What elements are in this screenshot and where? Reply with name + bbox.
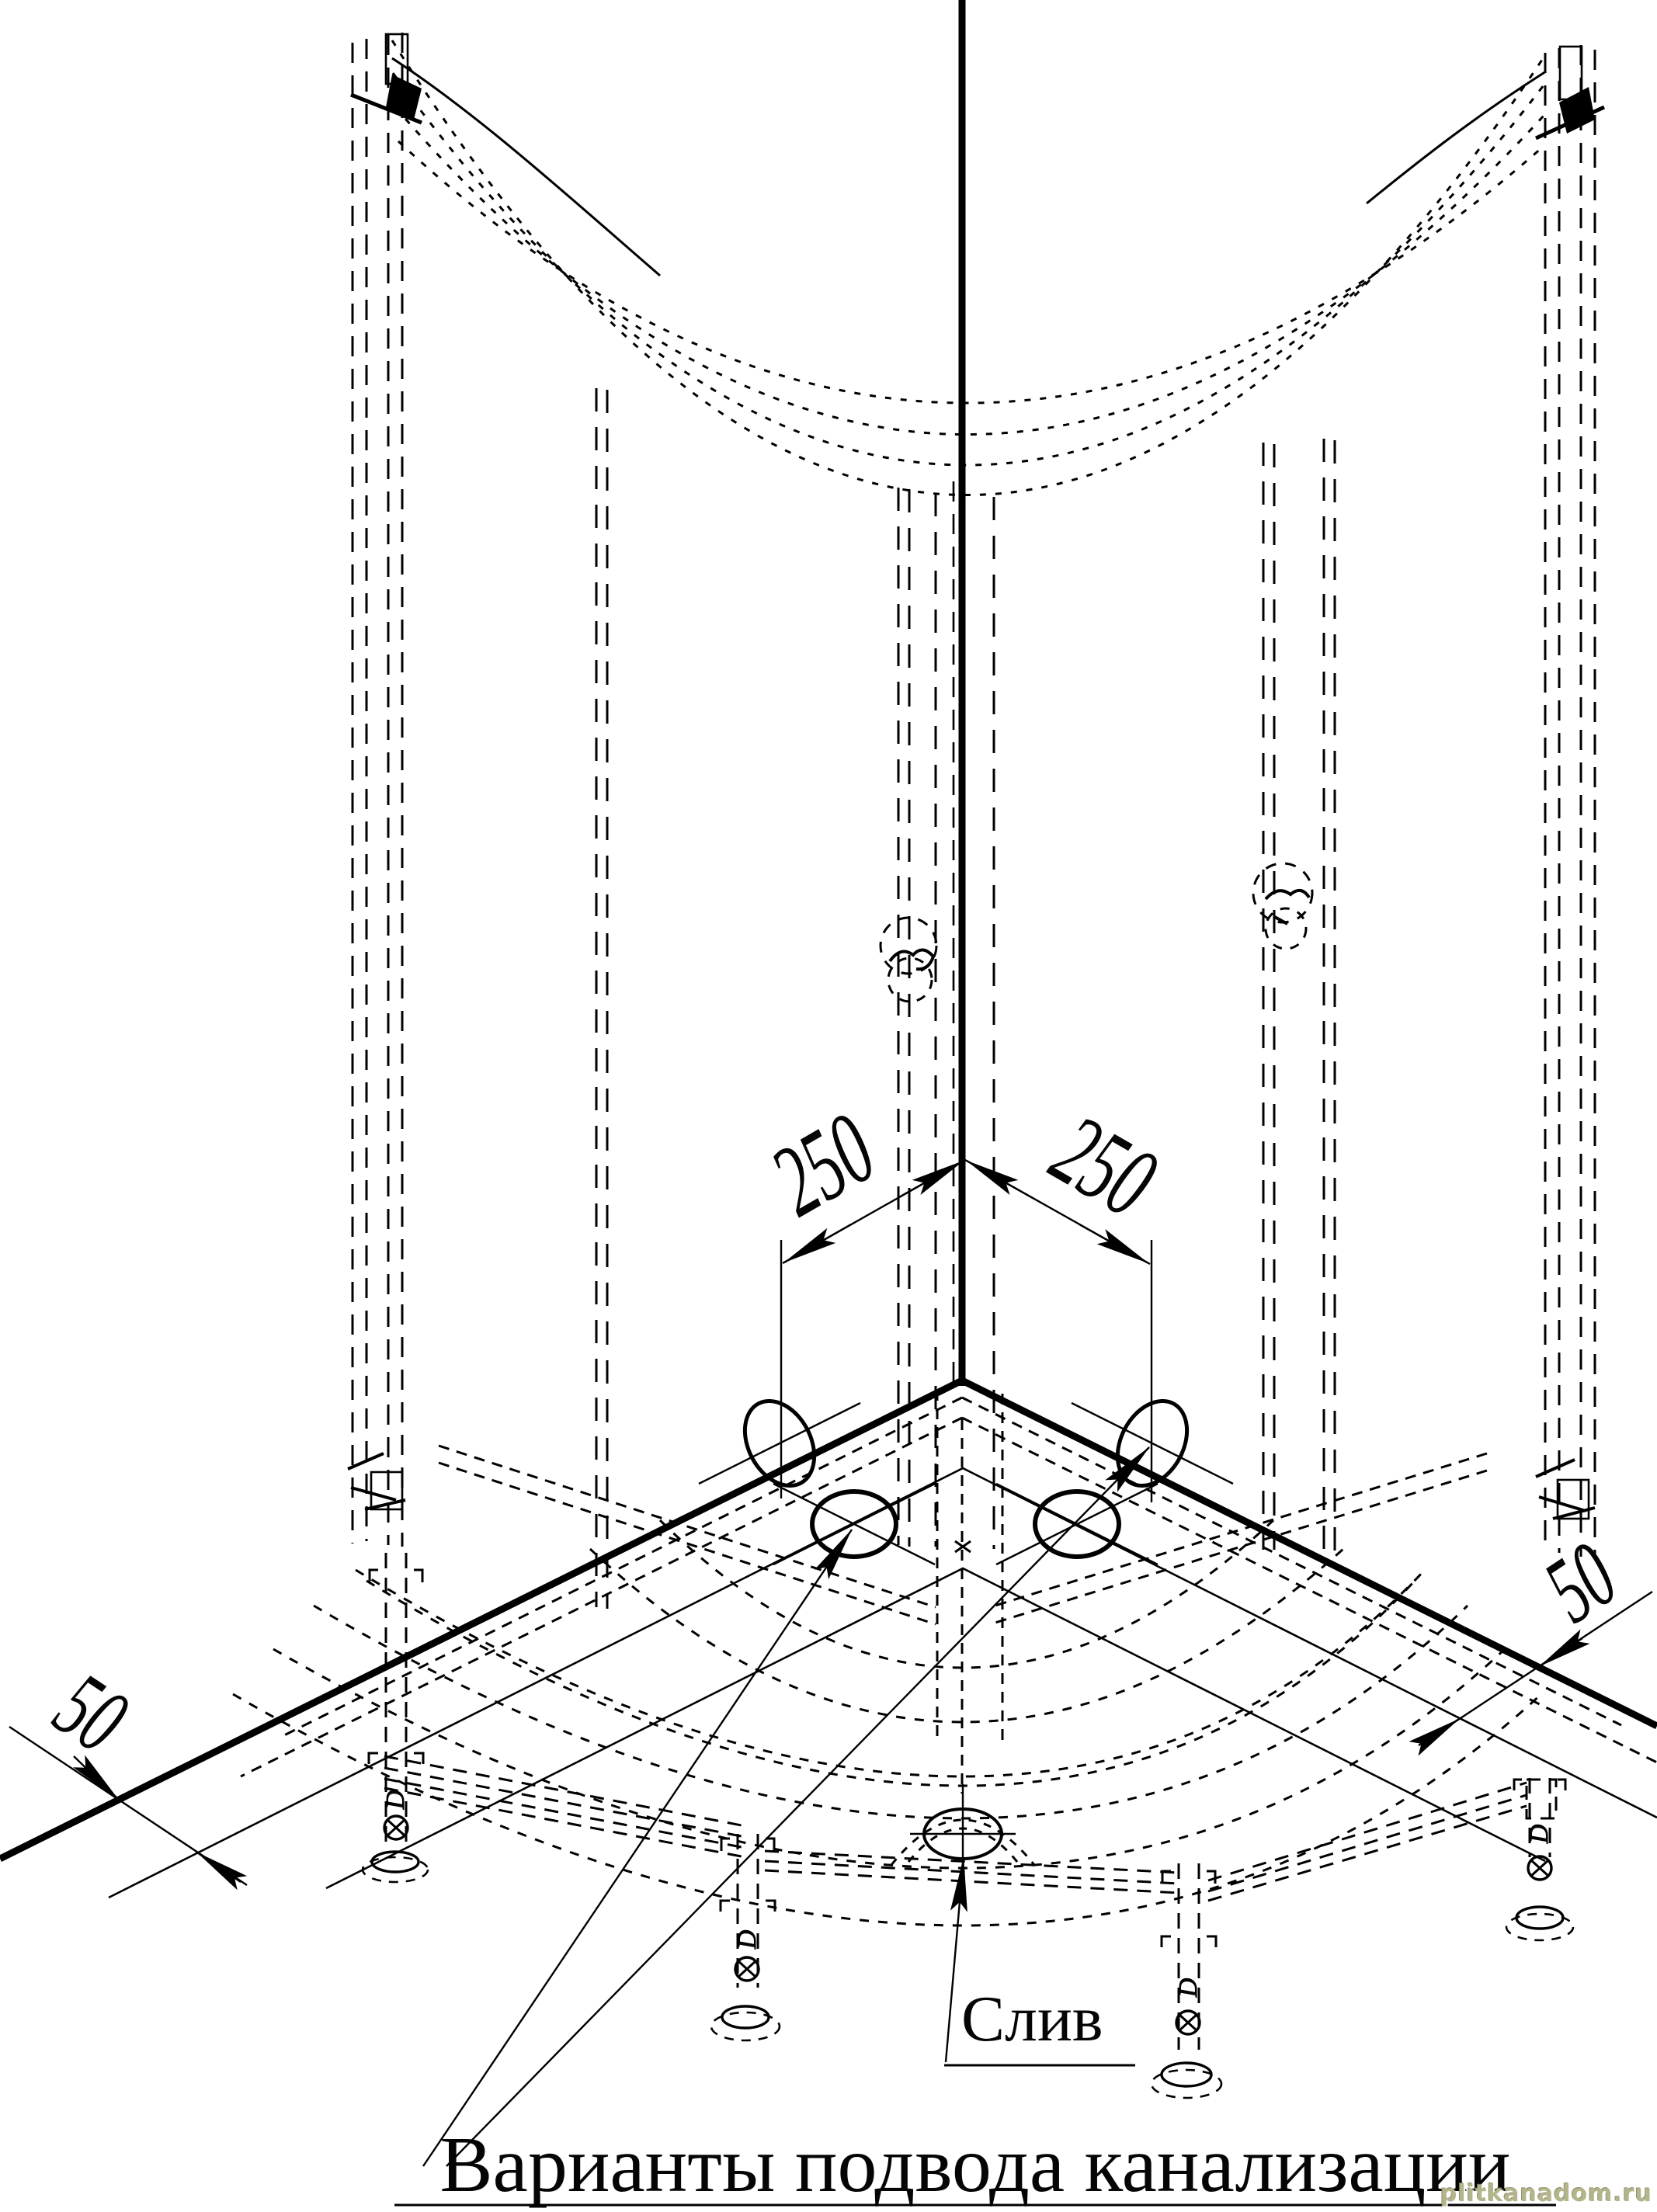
enclosure-walls — [348, 0, 1604, 1609]
dim-50-right-value: 50 — [1527, 1523, 1634, 1642]
top-rail-arcs — [392, 40, 1547, 495]
leg-center-right: D — [1152, 1863, 1221, 2098]
leader-options-1 — [423, 1530, 852, 2166]
left-bottom-bracket — [348, 1453, 405, 1509]
annotations: Слив Варианты подвода канализации — [394, 1447, 1556, 2209]
floor-drain-option-right — [996, 1484, 1158, 1564]
watermark: plitkanadom.ru — [1440, 2180, 1652, 2207]
leg-foot-icon — [722, 2006, 769, 2028]
leg-left-rear: D — [363, 1553, 428, 1882]
right-door-handle-icon — [1253, 863, 1312, 949]
drawing-canvas: D D D — [0, 0, 1657, 2212]
wall-floor-edge — [0, 1380, 1657, 1859]
dim-250-left: 250 — [753, 1091, 965, 1263]
dim-250-left-value: 250 — [753, 1091, 893, 1237]
leg-marking: D — [1525, 1824, 1554, 1844]
drain-label: Слив — [961, 1983, 1103, 2055]
dim-50-left: 50 — [9, 1653, 247, 1885]
dimensions: 250 250 50 50 — [9, 1091, 1652, 1885]
dim-250-right: 250 — [965, 1092, 1174, 1264]
leader-options-2 — [446, 1447, 1149, 2166]
top-rail-solid-right — [1367, 71, 1546, 203]
dim-50-left-value: 50 — [38, 1653, 144, 1773]
leg-marking: D — [381, 1790, 410, 1810]
options-label: Варианты подвода канализации — [440, 2121, 1511, 2209]
tray-apron-arcs — [233, 1570, 1541, 1926]
leg-marking: D — [1174, 1978, 1203, 1998]
left-wall-post — [353, 33, 402, 1547]
leg-foot-icon — [1162, 2063, 1211, 2086]
shower-tray — [0, 1380, 1657, 1926]
dim-250-right-value: 250 — [1034, 1092, 1174, 1238]
left-top-bracket — [351, 34, 422, 123]
leg-foot-icon — [1516, 1907, 1563, 1929]
top-rail-solid-left — [392, 58, 660, 276]
leg-marking: D — [733, 1929, 762, 1950]
dim-50-right: 50 — [1419, 1523, 1652, 1745]
shower-cabin-scheme: D D D — [0, 0, 1657, 2212]
floor-drain-option-left — [773, 1484, 935, 1564]
right-wall-post — [1545, 45, 1595, 1559]
leg-center-left: D — [711, 1834, 780, 2040]
